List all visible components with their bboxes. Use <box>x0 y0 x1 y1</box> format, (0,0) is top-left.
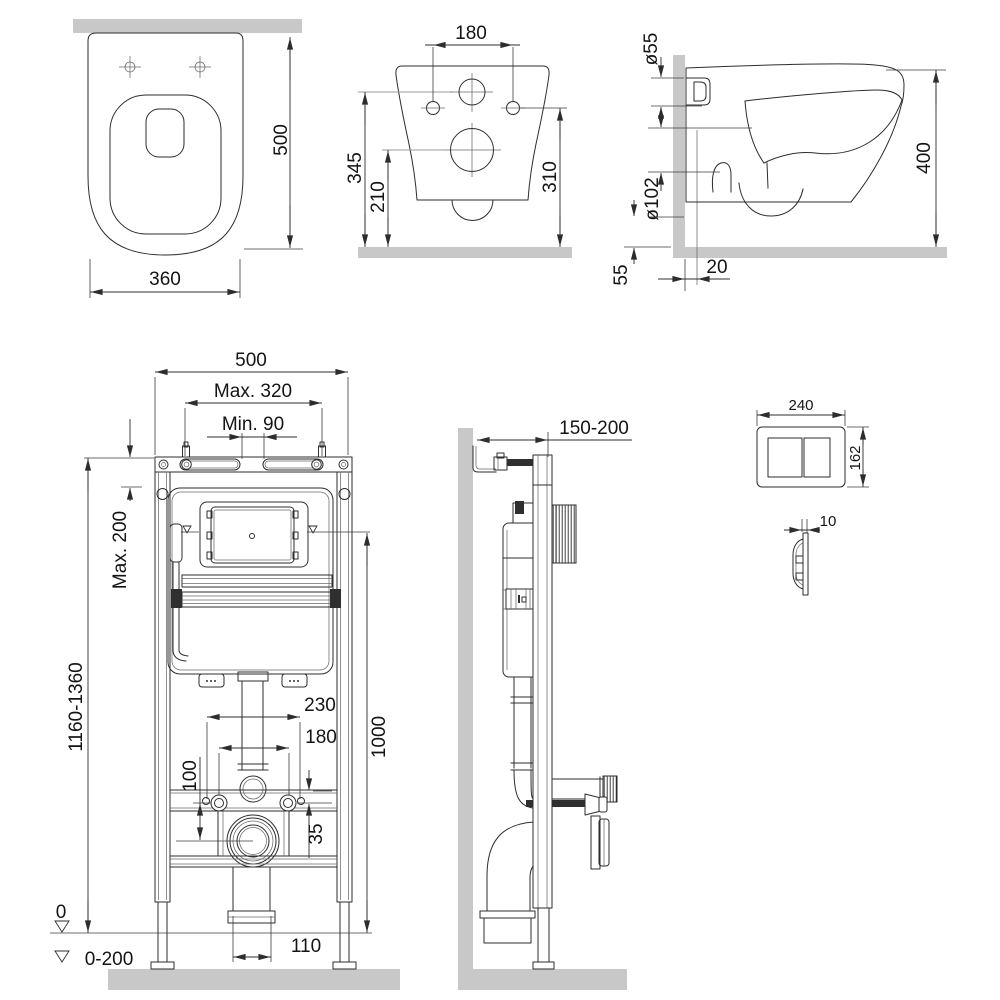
dim-width: 360 <box>149 269 181 290</box>
dim-conn-spacing-inner: 180 <box>305 727 337 748</box>
wall-surface <box>458 428 473 990</box>
flush-plate-thickness-dim: 10 <box>784 513 836 533</box>
level-triangle-floor <box>55 951 69 962</box>
dim-conn-spacing-outer: 230 <box>304 695 336 716</box>
toilet-side-details <box>686 78 902 216</box>
frame-front-dimensions: 500 Max. 320 Min. 90 Max. 200 1160-1360 <box>50 350 390 970</box>
dim-rail-offset: 35 <box>306 823 327 844</box>
cistern <box>168 488 370 687</box>
dim-under-clearance: 55 <box>611 264 632 285</box>
dim-max-spacing: Max. 320 <box>214 381 292 402</box>
rear-holes <box>358 73 525 177</box>
toilet-side-outline <box>686 64 904 202</box>
dim-outlet-height: 210 <box>368 181 389 213</box>
toilet-rear-outline <box>396 66 549 200</box>
dim-outlet-diameter: ø102 <box>642 177 663 220</box>
dim-floor-level-range: 0-200 <box>85 949 134 970</box>
seat-rim <box>110 95 221 234</box>
flush-plate-side-profile <box>793 533 808 595</box>
dim-depth: 500 <box>271 124 292 156</box>
dim-wall-gap: 20 <box>706 257 727 278</box>
inspection-door <box>506 589 535 609</box>
flush-button-small <box>804 438 830 477</box>
technical-drawing-canvas: 500 360 <box>0 0 1000 1000</box>
wall-surface <box>673 55 685 258</box>
wall-surface <box>73 19 302 33</box>
view-frame-front: 500 Max. 320 Min. 90 Max. 200 1160-1360 <box>50 350 400 990</box>
outlet-bump <box>452 200 493 220</box>
dim-plate-width: 240 <box>788 397 813 414</box>
plan-dimensions: 500 360 <box>90 37 303 298</box>
view-toilet-side: ø55 ø102 400 55 20 <box>611 33 947 291</box>
dim-inlet-height: 345 <box>345 152 366 184</box>
dim-frame-height-range: 1160-1360 <box>66 662 87 751</box>
floor-surface <box>108 969 400 990</box>
dim-plate-axis-height: 1000 <box>369 716 390 758</box>
bowl-water <box>146 109 184 157</box>
dim-max-top-offset: Max. 200 <box>110 511 131 589</box>
dim-drain-width: 110 <box>291 936 321 957</box>
dim-frame-depth-range: 150-200 <box>559 418 629 439</box>
frame-side-structure <box>473 446 617 969</box>
flush-plate-face <box>757 427 845 487</box>
dim-zero-level: 0 <box>56 902 67 923</box>
view-frame-side: 150-200 <box>458 418 632 990</box>
frame-side-dimensions: 150-200 <box>477 418 632 457</box>
dim-frame-width: 500 <box>235 350 267 371</box>
frame-rail <box>533 455 552 908</box>
flush-button-large <box>768 438 802 477</box>
dim-inlet-diameter: ø55 <box>641 33 662 66</box>
toilet-outline <box>88 33 243 255</box>
dim-total-height: 400 <box>914 142 935 174</box>
view-flush-plate: 240 162 10 <box>757 397 869 595</box>
view-toilet-rear: 180 345 210 310 <box>345 23 572 258</box>
dim-side-hole-height: 310 <box>540 161 561 193</box>
floor-surface <box>358 247 572 258</box>
fixing-cross-marks <box>119 56 211 78</box>
dim-min-spacing: Min. 90 <box>222 414 284 435</box>
dim-plate-thickness: 10 <box>820 513 837 530</box>
dim-bolt-spacing: 180 <box>455 23 487 44</box>
floor-surface <box>458 969 627 990</box>
dim-plate-height: 162 <box>847 445 864 470</box>
installation-diagram: 500 360 <box>0 0 1000 1000</box>
view-toilet-plan: 500 360 <box>73 19 303 298</box>
dim-supply-offset: 100 <box>180 760 201 792</box>
flush-plate-dimensions: 240 162 <box>757 397 869 487</box>
